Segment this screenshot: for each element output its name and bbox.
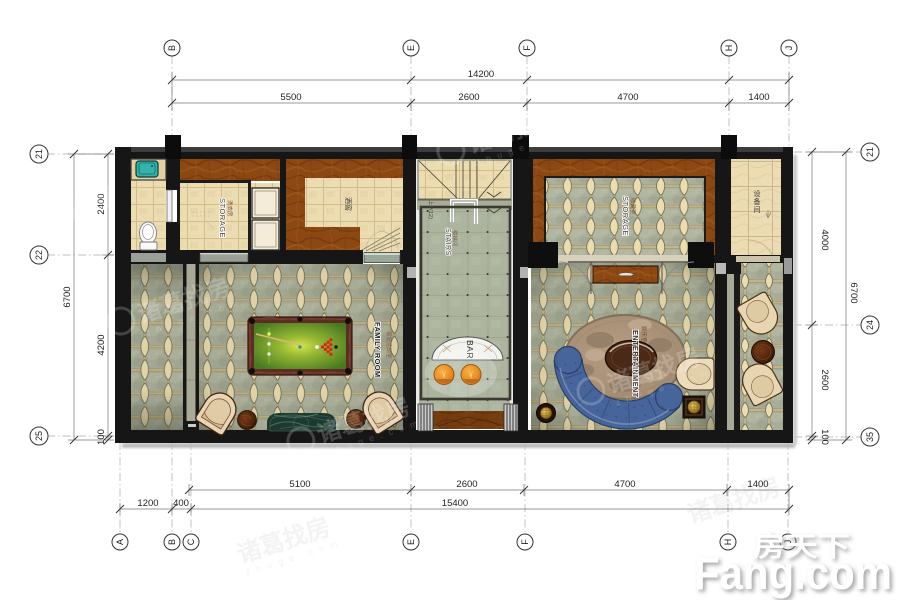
svg-text:1200: 1200 xyxy=(137,498,158,509)
svg-text:100: 100 xyxy=(96,429,107,445)
svg-text:2600: 2600 xyxy=(458,92,479,103)
svg-text:21: 21 xyxy=(865,147,875,157)
svg-text:A: A xyxy=(115,539,125,545)
svg-text:FAMILY ROOM: FAMILY ROOM xyxy=(373,322,382,377)
svg-text:5100: 5100 xyxy=(289,479,310,490)
svg-text:J: J xyxy=(784,46,794,51)
svg-text:1400: 1400 xyxy=(748,92,769,103)
svg-text:14200: 14200 xyxy=(468,69,494,80)
svg-text:H: H xyxy=(724,45,734,52)
svg-text:酒窖: 酒窖 xyxy=(344,197,353,211)
svg-text:25: 25 xyxy=(34,431,44,441)
svg-text:15400: 15400 xyxy=(442,498,468,509)
svg-text:STORAGE: STORAGE xyxy=(621,196,630,236)
svg-text:B: B xyxy=(167,45,177,51)
svg-text:STORAGE: STORAGE xyxy=(218,198,227,238)
svg-text:F: F xyxy=(520,539,530,545)
svg-text:间: 间 xyxy=(754,206,761,214)
svg-text:楼梯间: 楼梯间 xyxy=(451,230,459,247)
svg-text:E: E xyxy=(406,539,416,545)
svg-text:5500: 5500 xyxy=(280,92,301,103)
svg-text:F: F xyxy=(522,45,532,51)
svg-text:100: 100 xyxy=(819,429,830,445)
svg-text:2600: 2600 xyxy=(456,479,477,490)
svg-text:6700: 6700 xyxy=(62,286,73,307)
svg-text:400: 400 xyxy=(173,498,189,509)
svg-text:4200: 4200 xyxy=(96,334,107,355)
svg-text:Fang.com: Fang.com xyxy=(694,547,892,599)
svg-text:娱乐室: 娱乐室 xyxy=(640,326,648,343)
svg-text:4700: 4700 xyxy=(614,479,635,490)
svg-text:E: E xyxy=(406,45,416,51)
svg-text:设: 设 xyxy=(754,189,761,198)
svg-text:家庭活动室: 家庭活动室 xyxy=(385,331,393,359)
svg-text:21: 21 xyxy=(34,149,44,159)
svg-text:STAIRS: STAIRS xyxy=(444,228,451,256)
svg-text:H: H xyxy=(723,539,733,546)
svg-text:4000: 4000 xyxy=(819,229,830,250)
svg-text:22: 22 xyxy=(34,250,44,260)
svg-text:4700: 4700 xyxy=(617,92,638,103)
svg-text:2600: 2600 xyxy=(819,369,830,390)
svg-text:24: 24 xyxy=(865,320,875,330)
svg-text:备: 备 xyxy=(754,197,761,206)
svg-text:B: B xyxy=(167,539,177,545)
svg-text:上P(12): 上P(12) xyxy=(427,200,435,219)
svg-text:35: 35 xyxy=(865,432,875,442)
svg-text:6700: 6700 xyxy=(848,282,859,303)
svg-text:C: C xyxy=(186,538,196,545)
